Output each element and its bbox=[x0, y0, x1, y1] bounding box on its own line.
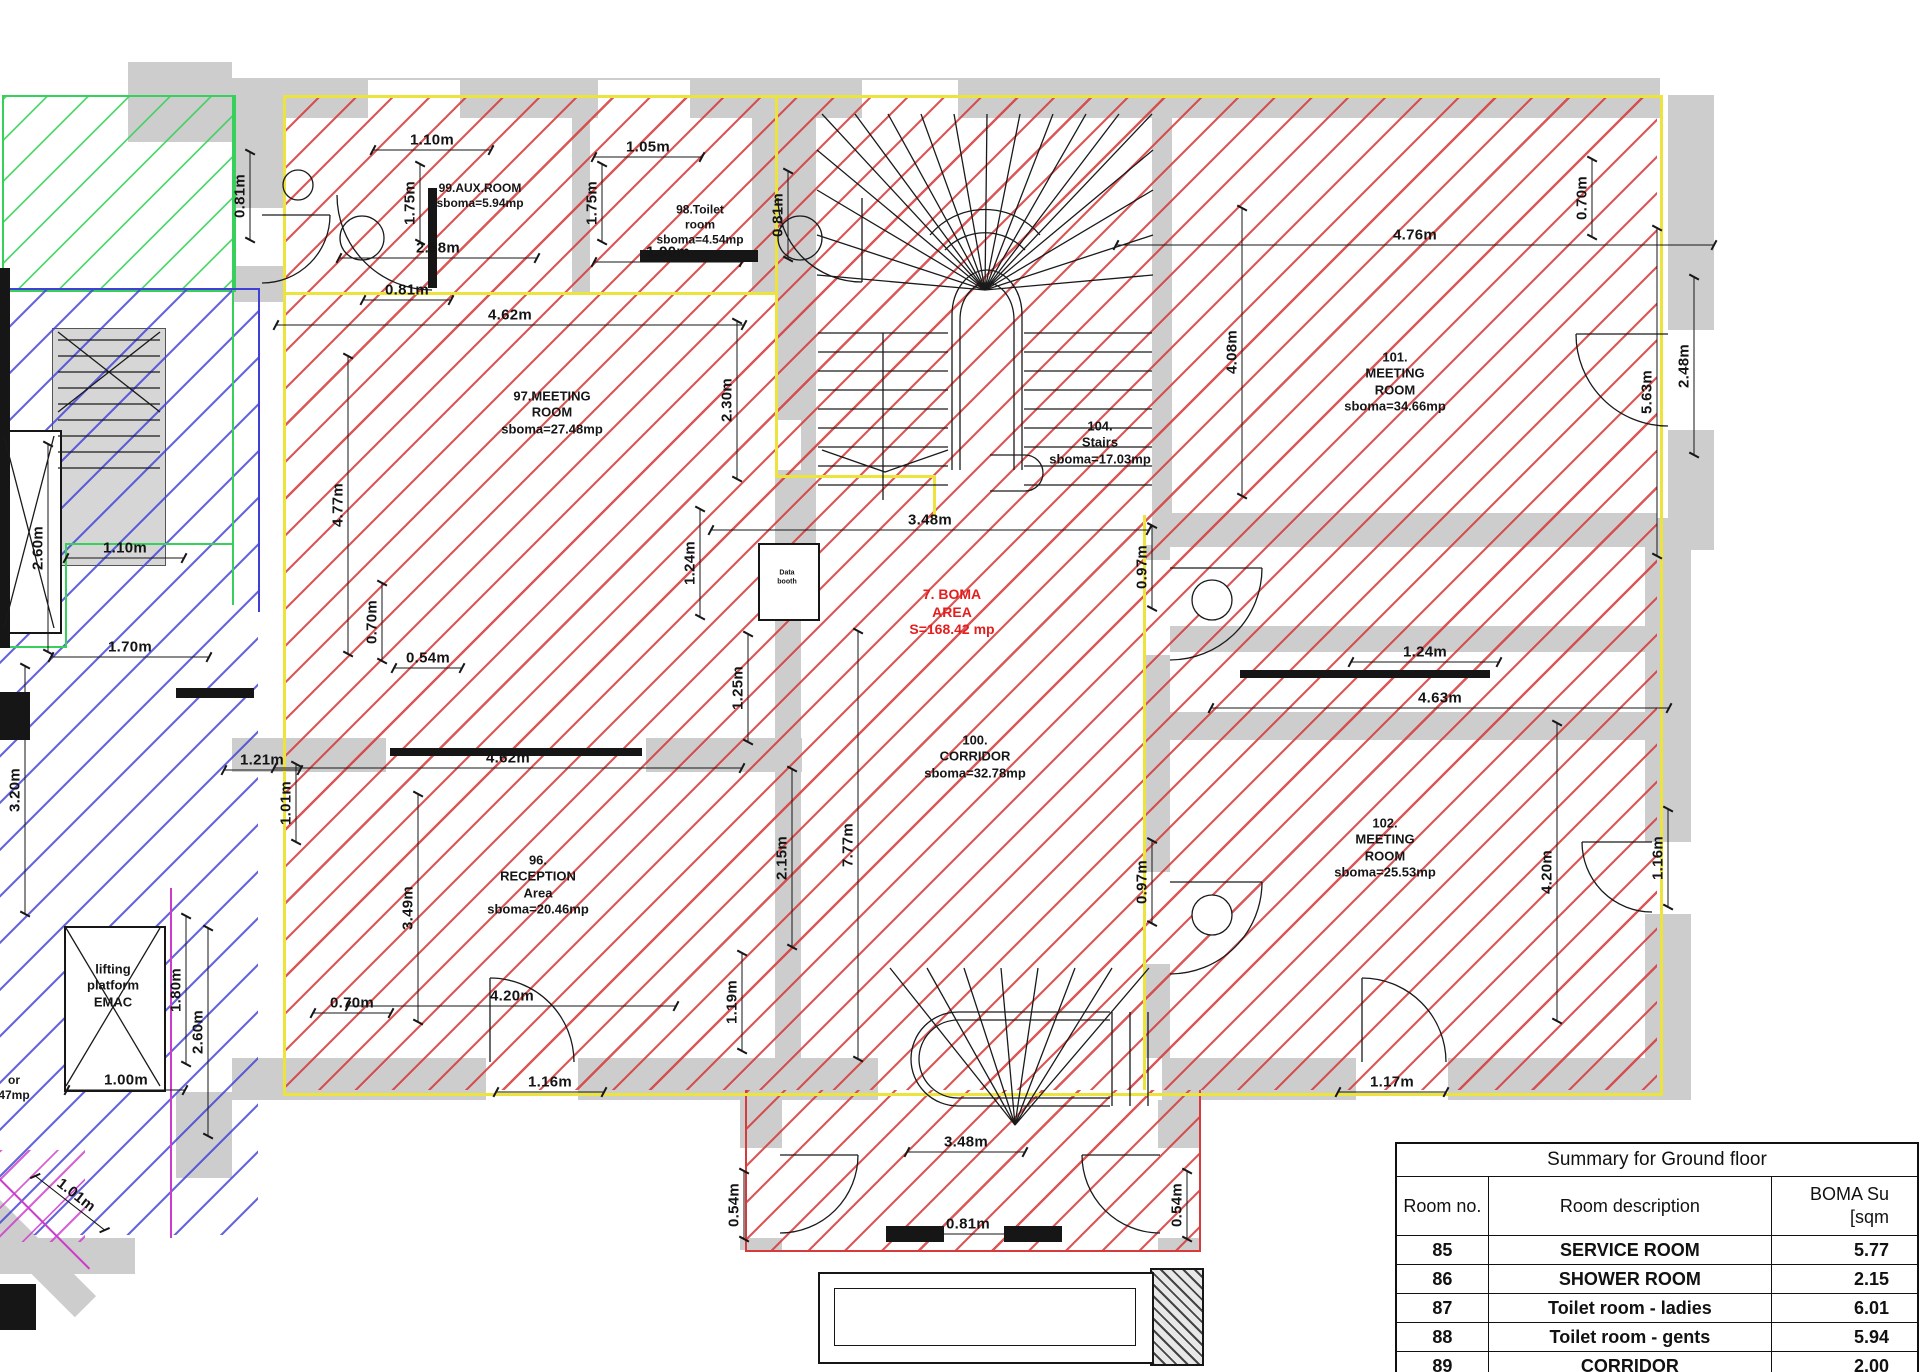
dimension-label: 2.60m bbox=[48, 443, 49, 653]
floor-plan-canvas: 99.AUX.ROOM sboma=5.94mp98.Toilet room s… bbox=[0, 0, 1919, 1372]
dimension-label: 3.48m bbox=[906, 1152, 1026, 1153]
cell-room-no: 86 bbox=[1396, 1265, 1488, 1294]
cell-description: Toilet room - gents bbox=[1488, 1323, 1771, 1352]
cell-area: 2.00 bbox=[1772, 1352, 1919, 1372]
dimension-label: 2.48m bbox=[1694, 276, 1695, 456]
dimension-label: 0.54m bbox=[1187, 1170, 1188, 1240]
dimension-label: 1.16m bbox=[1668, 808, 1669, 908]
dimension-label: 4.20m bbox=[347, 1006, 677, 1007]
cell-description: Toilet room - ladies bbox=[1488, 1294, 1771, 1323]
dimension-label: 1.24m bbox=[1350, 662, 1500, 663]
dimension-label: 0.81m bbox=[788, 170, 789, 260]
dimension-label: 0.81m bbox=[921, 1234, 1016, 1235]
cell-area: 2.15 bbox=[1772, 1265, 1919, 1294]
dimension-label: 4.20m bbox=[1557, 722, 1558, 1022]
room-label-room-102-meeting: 102. MEETING ROOM sboma=25.53mp bbox=[1334, 816, 1436, 881]
cell-description: CORRIDOR bbox=[1488, 1352, 1771, 1372]
cell-room-no: 89 bbox=[1396, 1352, 1488, 1372]
dimension-label: 0.70m bbox=[1592, 158, 1593, 238]
dimension-label: 0.54m bbox=[744, 1170, 745, 1240]
cell-room-no: 88 bbox=[1396, 1323, 1488, 1352]
dimension-label: 1.17m bbox=[1337, 1092, 1447, 1093]
summary-col-room-no: Room no. bbox=[1396, 1177, 1488, 1236]
room-label-room-99-aux: 99.AUX.ROOM sboma=5.94mp bbox=[436, 181, 523, 211]
cell-room-no: 87 bbox=[1396, 1294, 1488, 1323]
room-label-room-100-corridor: 100. CORRIDOR sboma=32.78mp bbox=[924, 733, 1026, 782]
dimension-label: 1.00m bbox=[66, 1090, 186, 1091]
summary-col-boma-surface: BOMA Su[sqm bbox=[1772, 1177, 1919, 1236]
cell-description: SHOWER ROOM bbox=[1488, 1265, 1771, 1294]
dimension-label: 1.25m bbox=[748, 633, 749, 743]
cell-area: 6.01 bbox=[1772, 1294, 1919, 1323]
summary-table-body: 85SERVICE ROOM5.7786SHOWER ROOM2.1587Toi… bbox=[1396, 1236, 1918, 1372]
summary-col-description: Room description bbox=[1488, 1177, 1771, 1236]
room-label-lifting-platform: lifting platform EMAC bbox=[87, 962, 139, 1011]
room-label-room-104-stairs: 104. Stairs sboma=17.03mp bbox=[1049, 419, 1151, 468]
dimension-label: 3.48m bbox=[710, 530, 1150, 531]
dimension-label: 2.15m bbox=[792, 768, 793, 948]
dimension-label: 4.77m bbox=[348, 355, 349, 655]
dimension-label: 1.05m bbox=[593, 157, 703, 158]
dimension-label: 1.90m bbox=[593, 262, 743, 263]
cell-area: 5.77 bbox=[1772, 1236, 1919, 1265]
dimension-label: 2.30m bbox=[737, 320, 738, 480]
room-label-boma-area: 7. BOMA AREA S=168.42 mp bbox=[909, 586, 994, 639]
summary-table-row: 86SHOWER ROOM2.15 bbox=[1396, 1265, 1918, 1294]
dimension-label: 0.70m bbox=[382, 582, 383, 662]
summary-table-title: Summary for Ground floor bbox=[1396, 1143, 1918, 1177]
dimension-label: 3.49m bbox=[418, 793, 419, 1023]
cell-description: SERVICE ROOM bbox=[1488, 1236, 1771, 1265]
dimension-label: 0.81m bbox=[250, 151, 251, 241]
dimension-label: 1.16m bbox=[495, 1092, 605, 1093]
dimension-label: 1.70m bbox=[50, 657, 210, 658]
summary-table-row: 87Toilet room - ladies6.01 bbox=[1396, 1294, 1918, 1323]
dimension-label: 4.08m bbox=[1242, 207, 1243, 497]
dimension-label: 4.62m bbox=[273, 768, 743, 769]
dimension-label: 4.63m bbox=[1210, 708, 1670, 709]
cell-area: 5.94 bbox=[1772, 1323, 1919, 1352]
summary-table-row: 85SERVICE ROOM5.77 bbox=[1396, 1236, 1918, 1265]
summary-table: Summary for Ground floor Room no. Room d… bbox=[1395, 1142, 1919, 1372]
dimension-label: 1.21m bbox=[223, 770, 301, 771]
room-label-room-97-meeting: 97.MEETING ROOM sboma=27.48mp bbox=[501, 389, 603, 438]
dimension-label: 0.70m bbox=[312, 1013, 392, 1014]
dimension-label: 0.54m bbox=[393, 668, 463, 669]
room-label-room-96-reception: 96. RECEPTION Area sboma=20.46mp bbox=[487, 853, 589, 918]
dimension-label: 1.01m bbox=[296, 763, 297, 843]
room-label-data-box: Data booth bbox=[777, 569, 796, 587]
summary-table-row: 89CORRIDOR2.00 bbox=[1396, 1352, 1918, 1372]
dimension-label: 2.60m bbox=[208, 927, 209, 1137]
dimension-label: 4.62m bbox=[275, 325, 745, 326]
dimension-label: 1.24m bbox=[700, 508, 701, 618]
dimension-label: 1.80m bbox=[186, 915, 187, 1065]
dimension-label: 1.75m bbox=[602, 163, 603, 243]
dimension-label: 5.63m bbox=[1657, 227, 1658, 557]
dimension-label: 0.81m bbox=[362, 300, 452, 301]
dimension-label: 0.97m bbox=[1152, 525, 1153, 610]
dimension-label: 7.77m bbox=[858, 630, 859, 1060]
dimension-label: 1.10m bbox=[372, 150, 492, 151]
dimension-label: 2.58m bbox=[338, 258, 538, 259]
dimension-label: 1.10m bbox=[65, 558, 185, 559]
dimension-label: 4.76m bbox=[1115, 245, 1715, 246]
room-label-room-101-meeting: 101. MEETING ROOM sboma=34.66mp bbox=[1344, 350, 1446, 415]
dimension-label: 1.75m bbox=[420, 163, 421, 243]
dimension-label: 3.20m bbox=[25, 665, 26, 915]
room-label-edge-partial: or 47mp bbox=[0, 1073, 30, 1103]
dimension-label: 0.97m bbox=[1152, 840, 1153, 925]
summary-table-row: 88Toilet room - gents5.94 bbox=[1396, 1323, 1918, 1352]
dimension-label: 1.19m bbox=[742, 952, 743, 1052]
cell-room-no: 85 bbox=[1396, 1236, 1488, 1265]
room-label-room-98-toilet: 98.Toilet room sboma=4.54mp bbox=[656, 203, 743, 248]
